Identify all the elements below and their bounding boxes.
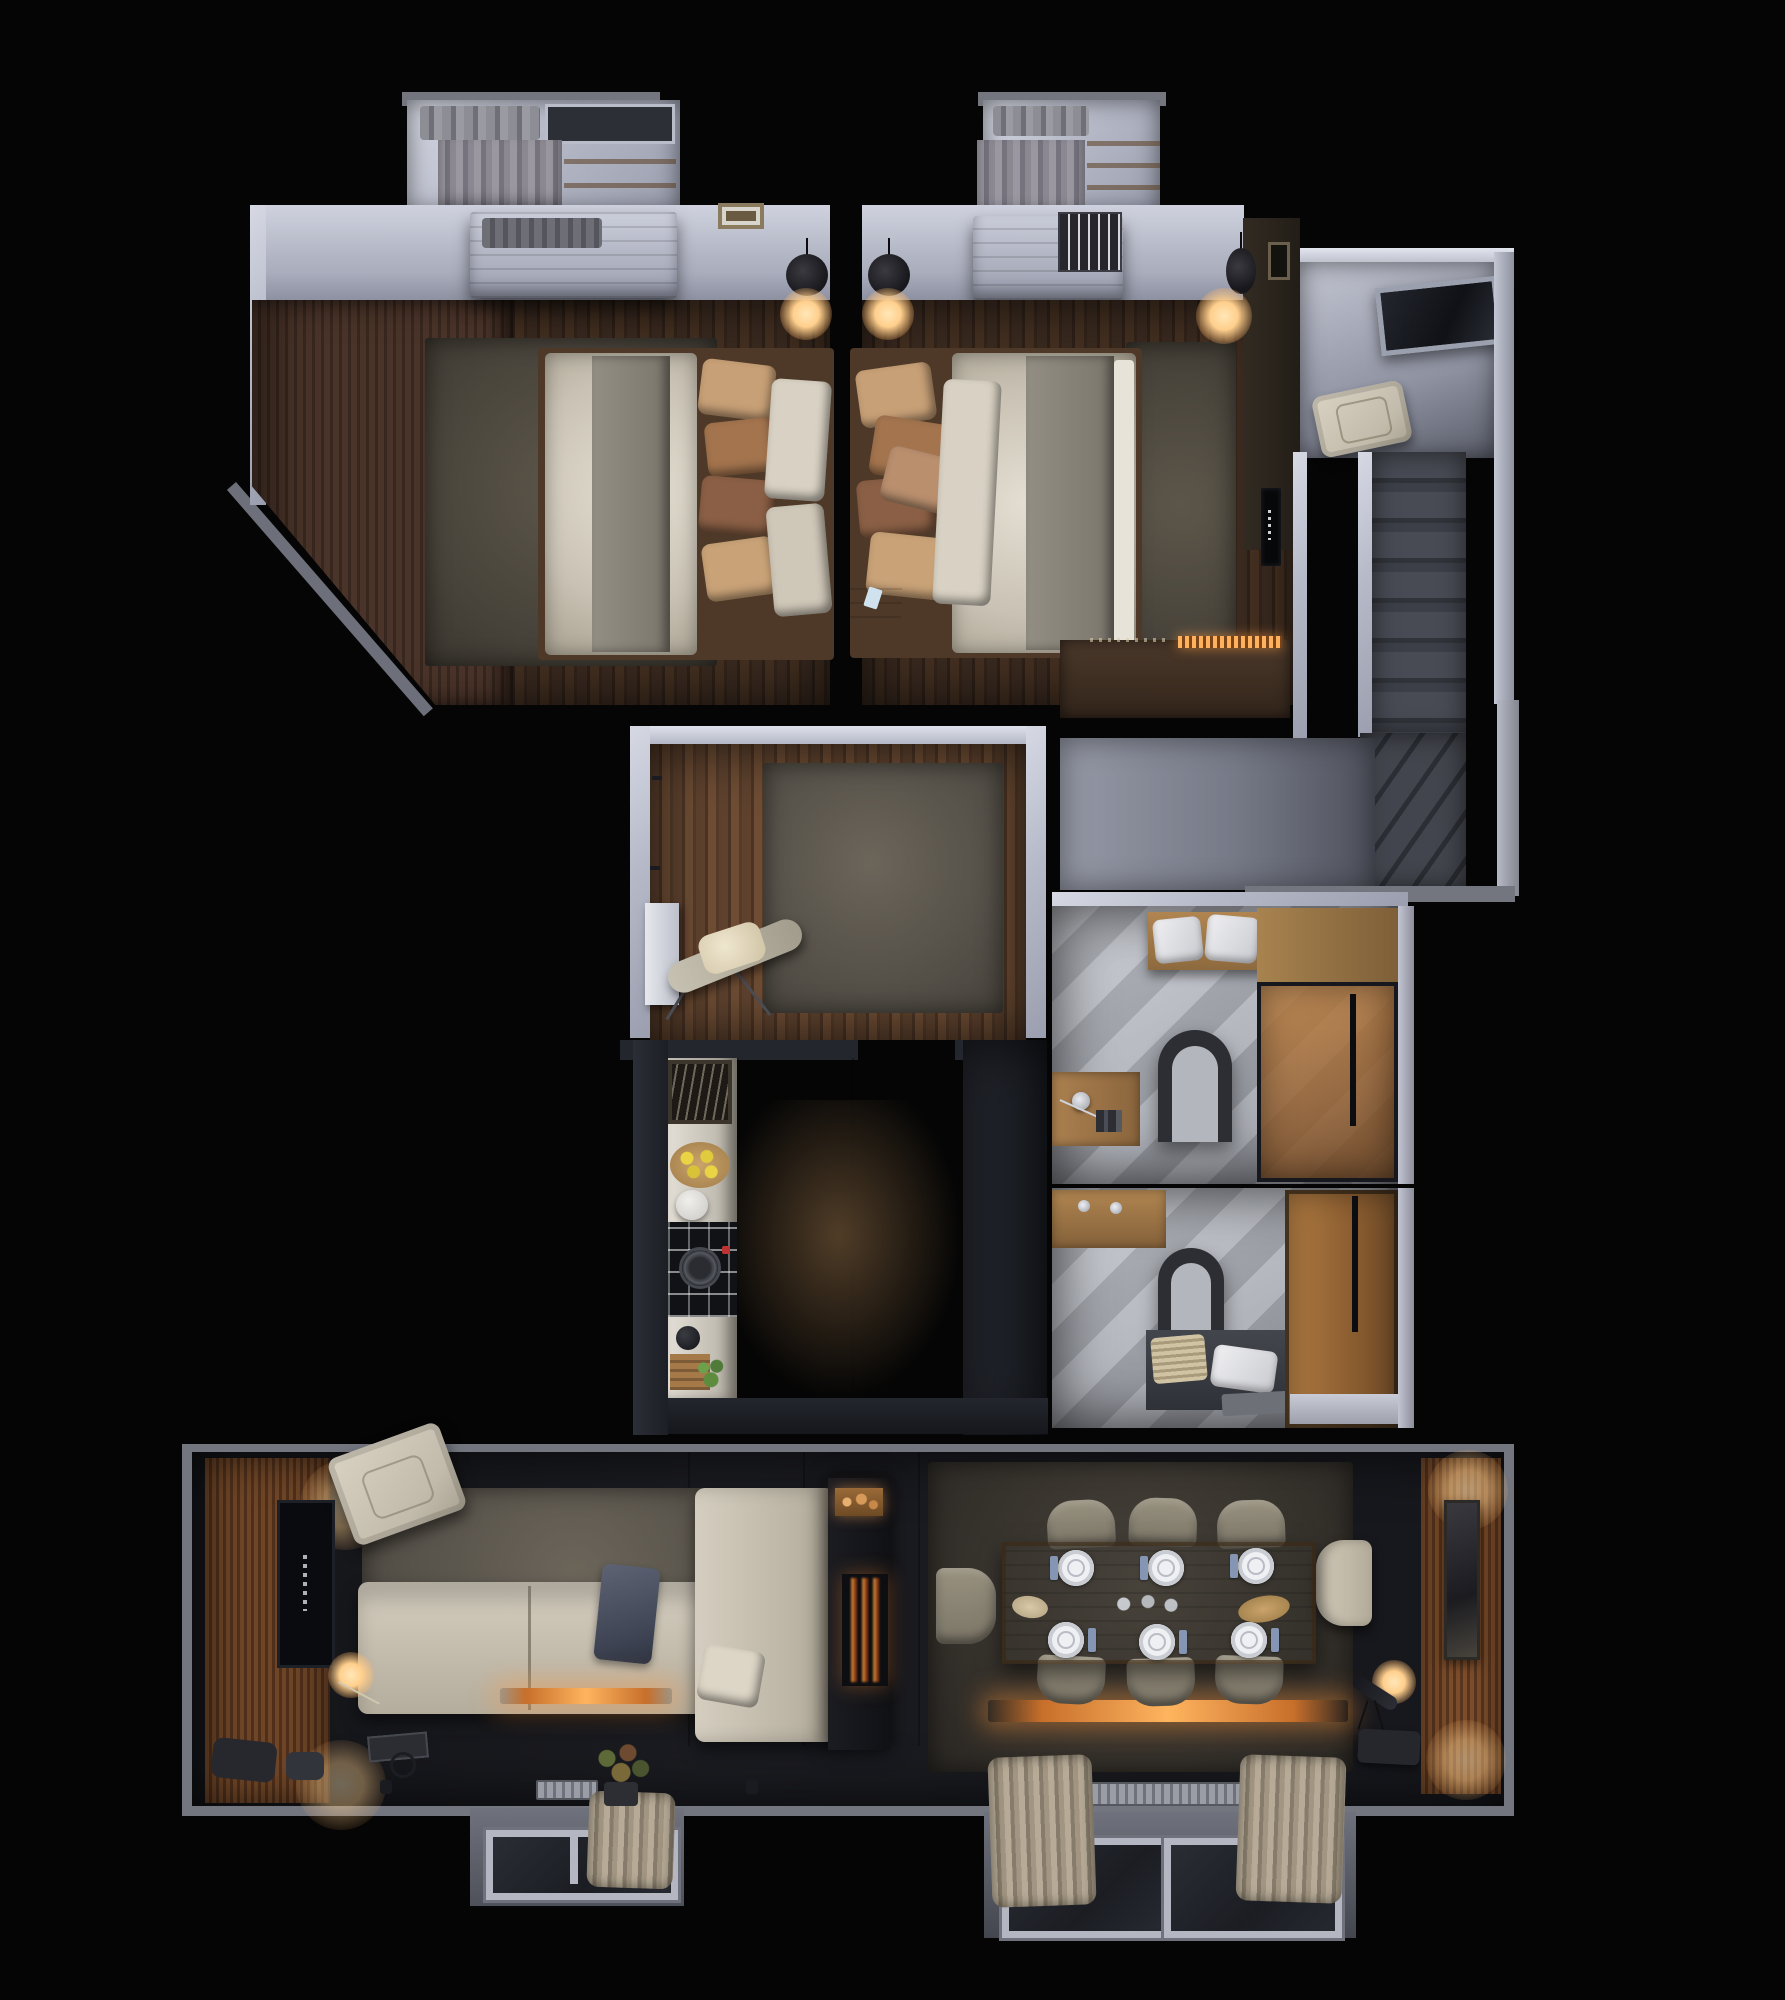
right-bay-curtain-left bbox=[987, 1754, 1096, 1908]
floorplan-render bbox=[0, 0, 1785, 2000]
right-bay-radiator bbox=[1090, 1782, 1244, 1806]
right-bay-window bbox=[0, 0, 1785, 2000]
right-bay-curtain-right bbox=[1235, 1754, 1346, 1904]
